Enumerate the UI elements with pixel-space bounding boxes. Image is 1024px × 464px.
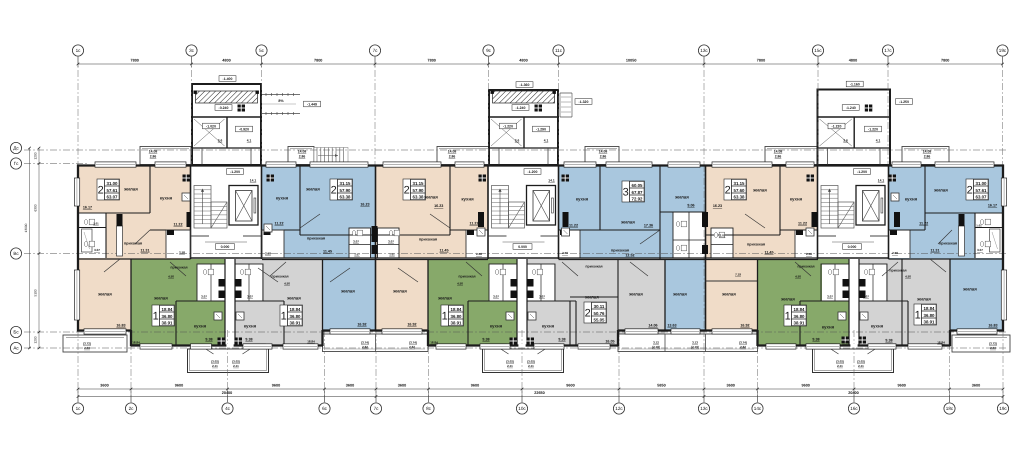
svg-text:кухня: кухня bbox=[160, 196, 173, 201]
svg-text:-1.240: -1.240 bbox=[516, 106, 526, 110]
svg-text:-1.400: -1.400 bbox=[223, 77, 233, 81]
svg-text:14.1: 14.1 bbox=[250, 179, 257, 183]
svg-text:12с: 12с bbox=[615, 406, 623, 411]
svg-text:31.15: 31.15 bbox=[734, 181, 746, 186]
svg-text:-1.160: -1.160 bbox=[850, 82, 860, 86]
svg-text:-0.240: -0.240 bbox=[219, 106, 229, 110]
svg-text:прихожая: прихожая bbox=[889, 269, 906, 273]
svg-text:жилая: жилая bbox=[752, 188, 767, 193]
svg-text:57.90: 57.90 bbox=[413, 188, 425, 193]
svg-text:3600: 3600 bbox=[726, 384, 734, 388]
svg-text:8%: 8% bbox=[278, 99, 284, 103]
svg-text:кухня: кухня bbox=[244, 324, 257, 329]
svg-text:прихожая: прихожая bbox=[170, 266, 187, 270]
svg-text:16.92: 16.92 bbox=[740, 324, 749, 328]
svg-text:9600: 9600 bbox=[801, 384, 809, 388]
svg-text:2: 2 bbox=[967, 185, 973, 197]
svg-text:1.07: 1.07 bbox=[354, 253, 360, 257]
svg-text:прихожая: прихожая bbox=[797, 265, 814, 269]
svg-text:18.84: 18.84 bbox=[451, 307, 463, 312]
svg-text:3.07: 3.07 bbox=[977, 248, 983, 252]
svg-text:прихожая: прихожая bbox=[419, 238, 437, 242]
svg-text:5850: 5850 bbox=[657, 384, 665, 388]
svg-text:36.80: 36.80 bbox=[794, 314, 806, 319]
svg-text:5100: 5100 bbox=[34, 289, 38, 296]
svg-text:9600: 9600 bbox=[897, 384, 905, 388]
svg-text:3.07: 3.07 bbox=[201, 295, 207, 299]
svg-text:57.90: 57.90 bbox=[340, 188, 352, 193]
svg-text:55.05: 55.05 bbox=[594, 317, 606, 322]
svg-text:4.50: 4.50 bbox=[795, 275, 801, 279]
svg-text:14.06: 14.06 bbox=[648, 324, 657, 328]
svg-text:-1.200: -1.200 bbox=[230, 170, 240, 174]
svg-text:10с: 10с bbox=[518, 406, 526, 411]
svg-text:2.66: 2.66 bbox=[84, 346, 90, 350]
svg-text:2: 2 bbox=[98, 185, 104, 197]
svg-text:1: 1 bbox=[785, 311, 791, 323]
svg-text:жилая: жилая bbox=[933, 188, 948, 193]
svg-text:жилая: жилая bbox=[916, 297, 931, 302]
svg-text:-1.020: -1.020 bbox=[206, 124, 216, 128]
svg-text:2: 2 bbox=[725, 185, 731, 197]
svg-text:36.80: 36.80 bbox=[924, 313, 936, 318]
svg-text:9.38: 9.38 bbox=[205, 338, 212, 342]
svg-text:3.07: 3.07 bbox=[720, 234, 726, 238]
svg-text:1: 1 bbox=[442, 311, 448, 323]
svg-text:67.87: 67.87 bbox=[632, 190, 644, 195]
svg-text:11.22: 11.22 bbox=[469, 222, 478, 226]
svg-text:18.84: 18.84 bbox=[430, 340, 438, 344]
svg-text:8с: 8с bbox=[426, 406, 432, 411]
svg-text:63.38: 63.38 bbox=[413, 194, 425, 199]
svg-text:4.50: 4.50 bbox=[905, 275, 911, 279]
svg-text:2.58: 2.58 bbox=[179, 251, 185, 255]
svg-text:57.61: 57.61 bbox=[976, 188, 988, 193]
svg-text:Дс: Дс bbox=[13, 146, 19, 151]
svg-text:кухня: кухня bbox=[276, 196, 289, 201]
svg-text:3.6: 3.6 bbox=[843, 139, 848, 143]
svg-text:18.84: 18.84 bbox=[794, 307, 806, 312]
svg-text:7с: 7с bbox=[373, 48, 379, 53]
svg-text:-1.250: -1.250 bbox=[899, 100, 909, 104]
svg-text:7.19: 7.19 bbox=[735, 273, 741, 277]
svg-text:3.6: 3.6 bbox=[218, 139, 223, 143]
svg-text:-0.920: -0.920 bbox=[239, 127, 249, 131]
svg-text:жилая: жилая bbox=[392, 289, 407, 294]
svg-text:31.15: 31.15 bbox=[413, 181, 425, 186]
svg-text:38.91: 38.91 bbox=[924, 319, 936, 324]
svg-text:жилая: жилая bbox=[437, 296, 452, 301]
svg-text:7800: 7800 bbox=[941, 59, 949, 63]
svg-text:3.07: 3.07 bbox=[353, 240, 359, 244]
svg-text:жилая: жилая bbox=[123, 187, 138, 192]
svg-text:16.92: 16.92 bbox=[407, 323, 416, 327]
svg-text:жилая: жилая bbox=[672, 292, 687, 297]
svg-text:кухня: кухня bbox=[490, 324, 503, 329]
svg-text:4800: 4800 bbox=[519, 59, 527, 63]
svg-text:16.83: 16.83 bbox=[988, 324, 997, 328]
svg-text:2.86: 2.86 bbox=[150, 155, 157, 159]
svg-text:прихожая: прихожая bbox=[585, 265, 602, 269]
svg-text:7800: 7800 bbox=[427, 59, 435, 63]
svg-text:19с: 19с bbox=[999, 48, 1007, 53]
svg-text:2.62: 2.62 bbox=[740, 345, 746, 349]
svg-text:3.07: 3.07 bbox=[388, 240, 394, 244]
svg-text:3.07: 3.07 bbox=[493, 295, 499, 299]
svg-text:-1.240: -1.240 bbox=[846, 106, 856, 110]
svg-text:9600: 9600 bbox=[272, 384, 280, 388]
svg-text:20400: 20400 bbox=[222, 391, 233, 395]
svg-text:3.07: 3.07 bbox=[827, 295, 833, 299]
svg-text:63.07: 63.07 bbox=[976, 194, 988, 199]
svg-text:36.80: 36.80 bbox=[162, 314, 174, 319]
svg-text:5с: 5с bbox=[259, 48, 265, 53]
svg-text:2.11: 2.11 bbox=[858, 364, 864, 368]
svg-text:2.86: 2.86 bbox=[775, 155, 782, 159]
svg-text:11.22: 11.22 bbox=[274, 222, 283, 226]
svg-text:11.45: 11.45 bbox=[764, 251, 773, 255]
svg-text:2.62: 2.62 bbox=[362, 345, 368, 349]
svg-text:11.22: 11.22 bbox=[798, 222, 807, 226]
svg-text:кухня: кухня bbox=[576, 197, 589, 202]
svg-text:3: 3 bbox=[623, 187, 629, 199]
svg-text:11.22: 11.22 bbox=[919, 222, 928, 226]
svg-text:4с: 4с bbox=[225, 406, 231, 411]
svg-text:прихожая: прихожая bbox=[271, 275, 288, 279]
svg-text:2.11: 2.11 bbox=[507, 364, 513, 368]
svg-text:4.1: 4.1 bbox=[876, 139, 881, 143]
svg-text:-1.200: -1.200 bbox=[857, 170, 867, 174]
svg-text:1: 1 bbox=[281, 311, 287, 323]
svg-text:11с: 11с bbox=[555, 48, 563, 53]
svg-text:38.91: 38.91 bbox=[290, 320, 302, 325]
svg-text:14.1: 14.1 bbox=[548, 179, 555, 183]
svg-text:прихожая: прихожая bbox=[307, 237, 325, 241]
svg-text:11.45: 11.45 bbox=[439, 249, 448, 253]
svg-text:19с: 19с bbox=[999, 406, 1007, 411]
svg-text:0.000: 0.000 bbox=[221, 245, 230, 249]
svg-text:Ас: Ас bbox=[13, 346, 19, 351]
svg-text:1.01: 1.01 bbox=[93, 222, 99, 226]
svg-text:2: 2 bbox=[331, 185, 337, 197]
svg-text:13.63: 13.63 bbox=[667, 324, 676, 328]
svg-text:14с: 14с bbox=[754, 406, 762, 411]
svg-text:жилая: жилая bbox=[423, 195, 438, 200]
svg-text:прихожая: прихожая bbox=[747, 243, 765, 247]
svg-text:9.38: 9.38 bbox=[812, 338, 819, 342]
svg-text:2.59: 2.59 bbox=[892, 251, 898, 255]
svg-text:2.66: 2.66 bbox=[990, 346, 996, 350]
svg-text:6300: 6300 bbox=[34, 204, 38, 211]
svg-text:жилая: жилая bbox=[340, 289, 355, 294]
svg-text:прихожая: прихожая bbox=[124, 242, 142, 246]
svg-text:7800: 7800 bbox=[130, 59, 138, 63]
svg-text:16.17: 16.17 bbox=[83, 206, 92, 210]
svg-text:жилая: жилая bbox=[620, 220, 635, 225]
svg-text:18.84: 18.84 bbox=[132, 340, 140, 344]
svg-text:-1.200: -1.200 bbox=[528, 170, 538, 174]
svg-text:жилая: жилая bbox=[962, 287, 977, 292]
svg-text:жилая: жилая bbox=[780, 297, 795, 302]
svg-text:7с: 7с bbox=[374, 406, 380, 411]
svg-text:жилая: жилая bbox=[153, 296, 168, 301]
svg-text:7800: 7800 bbox=[314, 59, 322, 63]
svg-text:2с: 2с bbox=[129, 406, 135, 411]
svg-text:(2.19): (2.19) bbox=[691, 345, 699, 349]
svg-text:9с: 9с bbox=[486, 48, 492, 53]
svg-text:9.38: 9.38 bbox=[482, 338, 489, 342]
svg-text:11.45: 11.45 bbox=[323, 250, 332, 254]
svg-text:2.62: 2.62 bbox=[409, 345, 415, 349]
svg-text:жилая: жилая bbox=[721, 292, 736, 297]
svg-text:4.1: 4.1 bbox=[247, 139, 252, 143]
svg-text:3.6: 3.6 bbox=[515, 139, 520, 143]
svg-text:13000: 13000 bbox=[24, 223, 28, 232]
svg-text:жилая: жилая bbox=[97, 292, 112, 297]
svg-text:3.07: 3.07 bbox=[539, 295, 545, 299]
svg-text:3600: 3600 bbox=[972, 384, 980, 388]
svg-text:0.000: 0.000 bbox=[518, 245, 527, 249]
svg-text:3.07: 3.07 bbox=[247, 295, 253, 299]
svg-text:1: 1 bbox=[153, 311, 159, 323]
svg-text:9.38: 9.38 bbox=[245, 338, 252, 342]
svg-text:жилая: жилая bbox=[305, 187, 320, 192]
svg-text:50.76: 50.76 bbox=[594, 311, 606, 316]
svg-text:прихожая: прихожая bbox=[939, 242, 957, 246]
svg-text:2.86: 2.86 bbox=[449, 155, 456, 159]
svg-text:31.00: 31.00 bbox=[976, 181, 988, 186]
svg-text:14.1: 14.1 bbox=[878, 179, 885, 183]
svg-text:Вс: Вс bbox=[13, 251, 19, 256]
svg-text:-1.449: -1.449 bbox=[307, 102, 317, 106]
svg-text:2.86: 2.86 bbox=[924, 155, 931, 159]
svg-text:31.15: 31.15 bbox=[340, 181, 352, 186]
svg-text:-1.220: -1.220 bbox=[868, 127, 878, 131]
svg-text:12.52: 12.52 bbox=[625, 254, 634, 258]
svg-text:1200: 1200 bbox=[34, 152, 38, 159]
svg-text:-1.360: -1.360 bbox=[520, 83, 530, 87]
svg-text:38.91: 38.91 bbox=[162, 320, 174, 325]
svg-text:9.06: 9.06 bbox=[687, 204, 694, 208]
svg-text:11.31: 11.31 bbox=[140, 249, 149, 253]
svg-text:4800: 4800 bbox=[222, 59, 230, 63]
svg-text:18.84: 18.84 bbox=[937, 340, 945, 344]
svg-text:13с: 13с bbox=[700, 406, 708, 411]
svg-text:жилая: жилая bbox=[628, 292, 643, 297]
svg-text:9600: 9600 bbox=[471, 384, 479, 388]
svg-text:63.38: 63.38 bbox=[340, 194, 352, 199]
svg-text:18.84: 18.84 bbox=[842, 340, 850, 344]
svg-text:прихожая: прихожая bbox=[458, 275, 475, 279]
svg-text:кухня: кухня bbox=[194, 324, 207, 329]
svg-text:2: 2 bbox=[404, 185, 410, 197]
svg-text:18.84: 18.84 bbox=[924, 306, 936, 311]
svg-text:1с: 1с bbox=[76, 48, 82, 53]
svg-text:-1.290: -1.290 bbox=[536, 127, 546, 131]
svg-text:11.22: 11.22 bbox=[569, 224, 578, 228]
svg-text:63.38: 63.38 bbox=[734, 194, 746, 199]
svg-text:16.23: 16.23 bbox=[360, 203, 369, 207]
svg-text:72.92: 72.92 bbox=[632, 196, 644, 201]
svg-text:-1.220: -1.220 bbox=[503, 124, 513, 128]
svg-text:9600: 9600 bbox=[175, 384, 183, 388]
svg-text:кухня: кухня bbox=[871, 324, 884, 329]
svg-text:(2.18): (2.18) bbox=[652, 345, 660, 349]
svg-text:1.01: 1.01 bbox=[389, 253, 395, 257]
svg-text:38.91: 38.91 bbox=[451, 320, 463, 325]
svg-text:1.01: 1.01 bbox=[976, 224, 982, 228]
svg-text:15с: 15с bbox=[814, 48, 822, 53]
svg-text:18.84: 18.84 bbox=[290, 307, 302, 312]
svg-text:31.00: 31.00 bbox=[107, 181, 119, 186]
svg-text:2.59: 2.59 bbox=[562, 251, 568, 255]
svg-text:30.11: 30.11 bbox=[594, 304, 605, 309]
svg-text:7800: 7800 bbox=[757, 59, 765, 63]
svg-text:2.86: 2.86 bbox=[299, 155, 306, 159]
svg-text:36.80: 36.80 bbox=[451, 314, 463, 319]
svg-text:2.58: 2.58 bbox=[806, 252, 812, 256]
svg-text:20400: 20400 bbox=[848, 391, 859, 395]
svg-text:2.86: 2.86 bbox=[600, 155, 607, 159]
svg-text:16с: 16с bbox=[850, 406, 858, 411]
svg-text:1200: 1200 bbox=[34, 336, 38, 343]
svg-text:16.17: 16.17 bbox=[988, 204, 997, 208]
svg-text:16.83: 16.83 bbox=[116, 324, 125, 328]
svg-text:4.1: 4.1 bbox=[544, 139, 549, 143]
svg-text:3600: 3600 bbox=[346, 384, 354, 388]
svg-text:2.11: 2.11 bbox=[837, 364, 843, 368]
svg-text:жилая: жилая bbox=[584, 295, 599, 300]
svg-text:63.07: 63.07 bbox=[107, 194, 119, 199]
svg-text:6с: 6с bbox=[322, 406, 328, 411]
svg-text:прихожая: прихожая bbox=[611, 249, 629, 253]
svg-text:4800: 4800 bbox=[849, 59, 857, 63]
svg-text:кухня: кухня bbox=[822, 325, 835, 330]
svg-text:2: 2 bbox=[585, 308, 591, 320]
svg-text:18с: 18с bbox=[946, 406, 954, 411]
svg-text:11.31: 11.31 bbox=[930, 249, 939, 253]
svg-text:4.50: 4.50 bbox=[168, 275, 174, 279]
svg-text:кухня: кухня bbox=[461, 197, 474, 202]
svg-text:3.07: 3.07 bbox=[94, 248, 100, 252]
svg-text:Бс: Бс bbox=[13, 330, 19, 335]
svg-text:2.11: 2.11 bbox=[233, 364, 239, 368]
svg-text:4.50: 4.50 bbox=[457, 282, 463, 286]
svg-text:57.60: 57.60 bbox=[734, 188, 746, 193]
svg-text:10050: 10050 bbox=[626, 59, 637, 63]
svg-text:жилая: жилая bbox=[674, 195, 689, 200]
svg-text:жилая: жилая bbox=[286, 296, 301, 301]
svg-text:3600: 3600 bbox=[100, 384, 108, 388]
svg-text:2.11: 2.11 bbox=[212, 364, 218, 368]
svg-text:11.22: 11.22 bbox=[173, 223, 182, 227]
svg-text:18.84: 18.84 bbox=[307, 339, 315, 343]
svg-text:3с: 3с bbox=[189, 48, 195, 53]
svg-text:кухня: кухня bbox=[905, 197, 918, 202]
svg-text:17с: 17с bbox=[884, 48, 892, 53]
svg-text:0.000: 0.000 bbox=[848, 245, 857, 249]
svg-text:3600: 3600 bbox=[398, 384, 406, 388]
svg-text:60.05: 60.05 bbox=[632, 183, 644, 188]
svg-text:16.92: 16.92 bbox=[357, 323, 366, 327]
svg-text:2.59: 2.59 bbox=[265, 252, 271, 256]
svg-text:57.61: 57.61 bbox=[107, 188, 119, 193]
svg-text:Гс: Гс bbox=[14, 161, 19, 166]
svg-text:-1.220: -1.220 bbox=[832, 124, 842, 128]
svg-text:4.50: 4.50 bbox=[284, 282, 290, 286]
svg-text:кухня: кухня bbox=[790, 197, 803, 202]
svg-text:38.91: 38.91 bbox=[794, 320, 806, 325]
svg-text:9.38: 9.38 bbox=[558, 338, 565, 342]
svg-text:16.23: 16.23 bbox=[713, 204, 722, 208]
svg-text:9600: 9600 bbox=[566, 384, 574, 388]
svg-text:1: 1 bbox=[915, 310, 921, 322]
svg-text:22650: 22650 bbox=[534, 391, 545, 395]
svg-text:18.84: 18.84 bbox=[162, 307, 174, 312]
svg-text:2.58: 2.58 bbox=[476, 252, 482, 256]
svg-text:2.11: 2.11 bbox=[528, 364, 534, 368]
svg-text:кухня: кухня bbox=[542, 324, 555, 329]
svg-text:1с: 1с bbox=[76, 406, 82, 411]
svg-text:17.36: 17.36 bbox=[644, 224, 653, 228]
svg-text:-1.320: -1.320 bbox=[579, 100, 589, 104]
svg-text:9.38: 9.38 bbox=[885, 339, 892, 343]
svg-text:3.07: 3.07 bbox=[863, 295, 869, 299]
svg-text:13с: 13с bbox=[700, 48, 708, 53]
svg-text:16.05: 16.05 bbox=[605, 340, 614, 344]
svg-text:16.23: 16.23 bbox=[434, 204, 443, 208]
svg-text:36.80: 36.80 bbox=[290, 314, 302, 319]
